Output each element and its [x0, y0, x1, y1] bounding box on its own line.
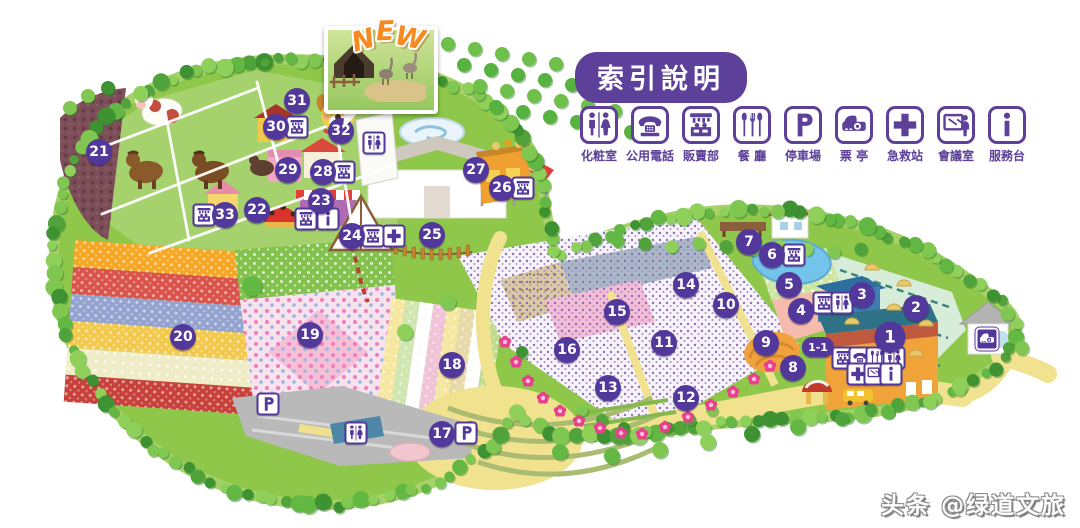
map-marker-26: 26: [489, 175, 515, 201]
restroom-icon: [345, 422, 368, 445]
legend-items: 化粧室 公用電話 販賣部 餐 廳 停車場 票 亭: [575, 106, 1031, 164]
map-marker-9: 9: [753, 330, 779, 356]
legend-label: 急救站: [887, 147, 923, 164]
map-marker-27: 27: [463, 157, 489, 183]
map-marker-15: 15: [604, 299, 630, 325]
legend-item-info: 服務台: [983, 106, 1031, 164]
map-marker-19: 19: [297, 322, 323, 348]
legend-item-firstaid: 急救站: [881, 106, 929, 164]
map-marker-3: 3: [849, 282, 875, 308]
map-marker-14: 14: [673, 272, 699, 298]
legend-label: 停車場: [785, 147, 821, 164]
legend-label: 餐 廳: [738, 147, 766, 164]
legend-item-ticket: 票 亭: [830, 106, 878, 164]
map-marker-30: 30: [263, 114, 289, 140]
map-marker-1-1: 1-1: [802, 337, 834, 357]
parking-icon: [257, 393, 280, 416]
new-badge-letter: E: [375, 16, 396, 48]
farm-park-map-poster: NEW 索引說明 化粧室 公用電話 販賣部 餐 廳: [0, 0, 1080, 528]
map-marker-4: 4: [788, 298, 814, 324]
parking-icon: [784, 106, 822, 144]
map-marker-21: 21: [86, 139, 112, 165]
meeting-icon: [937, 106, 975, 144]
legend-item-meeting: 會議室: [932, 106, 980, 164]
info-icon: [988, 106, 1026, 144]
legend-item-shop: 販賣部: [677, 106, 725, 164]
map-marker-29: 29: [275, 157, 301, 183]
map-marker-10: 10: [713, 292, 739, 318]
map-marker-18: 18: [439, 352, 465, 378]
legend-title: 索引說明: [575, 52, 747, 103]
map-marker-7: 7: [736, 229, 762, 255]
legend-item-parking: 停車場: [779, 106, 827, 164]
firstaid-icon: [886, 106, 924, 144]
legend-item-restaurant: 餐 廳: [728, 106, 776, 164]
map-marker-25: 25: [419, 222, 445, 248]
map-marker-33: 33: [212, 202, 238, 228]
map-marker-31: 31: [284, 88, 310, 114]
map-marker-1: 1: [875, 322, 906, 353]
map-marker-5: 5: [776, 272, 802, 298]
watermark: 头条 @绿道文旅: [881, 486, 1066, 520]
restroom-icon: [363, 132, 386, 155]
legend-label: 化粧室: [581, 147, 617, 164]
parking-icon: [455, 422, 478, 445]
legend-item-phone: 公用電話: [626, 106, 674, 164]
legend-item-restroom: 化粧室: [575, 106, 623, 164]
shop-icon: [682, 106, 720, 144]
map-marker-12: 12: [673, 385, 699, 411]
map-marker-13: 13: [595, 375, 621, 401]
legend-label: 票 亭: [840, 147, 868, 164]
map-marker-6: 6: [759, 242, 785, 268]
map-marker-2: 2: [903, 295, 929, 321]
legend-label: 服務台: [989, 147, 1025, 164]
firstaid-icon: [383, 225, 406, 248]
phone-icon: [631, 106, 669, 144]
legend-label: 會議室: [938, 147, 974, 164]
new-badge-letter: W: [392, 20, 429, 57]
ticket-icon: [835, 106, 873, 144]
map-marker-17: 17: [429, 421, 455, 447]
map-marker-16: 16: [554, 337, 580, 363]
map-marker-28: 28: [310, 159, 336, 185]
map-marker-24: 24: [339, 223, 365, 249]
map-marker-20: 20: [170, 324, 196, 350]
shop-icon: [783, 244, 806, 267]
restroom-icon: [580, 106, 618, 144]
new-badge: NEW: [352, 16, 426, 47]
map-legend: 索引說明 化粧室 公用電話 販賣部 餐 廳 停車場: [575, 52, 747, 103]
map-illustration: [0, 0, 1080, 528]
legend-label: 販賣部: [683, 147, 719, 164]
map-marker-8: 8: [780, 355, 806, 381]
legend-label: 公用電話: [626, 147, 674, 164]
restaurant-icon: [733, 106, 771, 144]
map-marker-11: 11: [651, 330, 677, 356]
map-marker-22: 22: [244, 197, 270, 223]
ticket-icon: [976, 328, 999, 351]
info-icon: [880, 363, 903, 386]
map-marker-23: 23: [308, 188, 334, 214]
